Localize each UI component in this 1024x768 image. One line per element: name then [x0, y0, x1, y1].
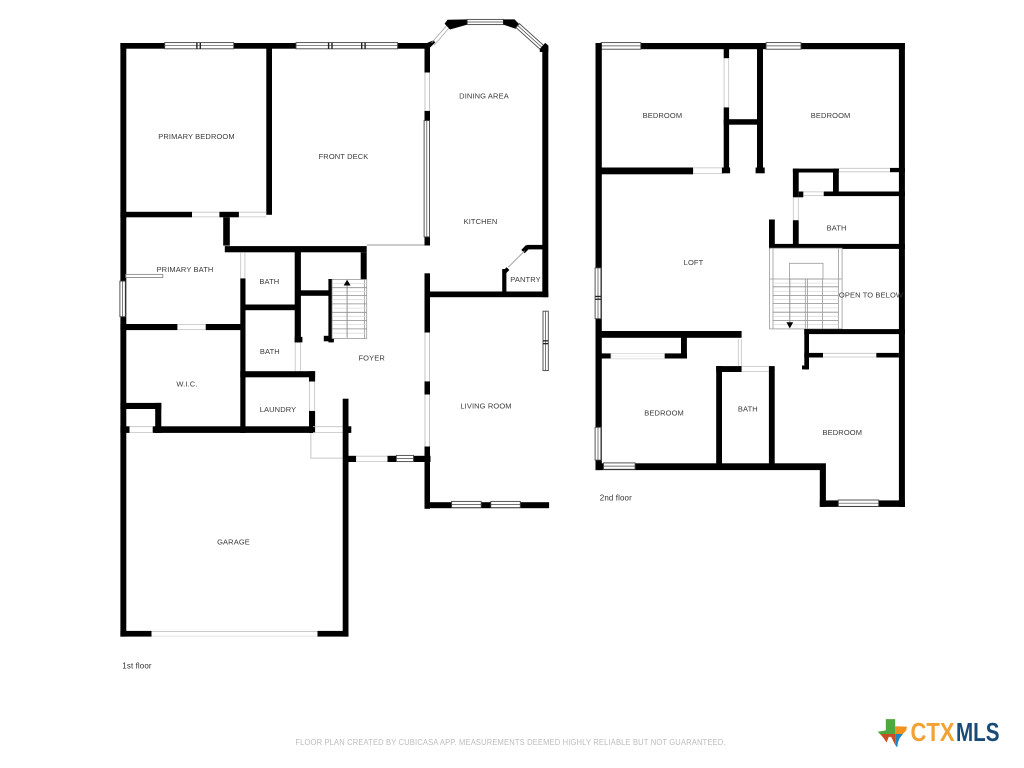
- svg-text:CTX: CTX: [911, 719, 955, 747]
- svg-text:LOFT: LOFT: [684, 258, 704, 267]
- svg-text:KITCHEN: KITCHEN: [464, 217, 498, 226]
- svg-text:BATH: BATH: [260, 347, 280, 356]
- svg-text:DINING AREA: DINING AREA: [459, 92, 509, 101]
- svg-text:BEDROOM: BEDROOM: [823, 428, 863, 437]
- svg-text:MLS: MLS: [956, 719, 1000, 747]
- svg-text:BATH: BATH: [827, 224, 847, 233]
- svg-text:GARAGE: GARAGE: [217, 538, 250, 547]
- svg-text:PRIMARY BEDROOM: PRIMARY BEDROOM: [158, 132, 235, 141]
- svg-text:LAUNDRY: LAUNDRY: [260, 405, 297, 414]
- svg-text:PRIMARY BATH: PRIMARY BATH: [157, 265, 214, 274]
- svg-text:1st floor: 1st floor: [122, 662, 152, 671]
- svg-text:BEDROOM: BEDROOM: [643, 111, 683, 120]
- svg-text:W.I.C.: W.I.C.: [176, 379, 197, 388]
- svg-text:BEDROOM: BEDROOM: [644, 409, 684, 418]
- svg-text:FRONT DECK: FRONT DECK: [319, 152, 369, 161]
- svg-text:BEDROOM: BEDROOM: [811, 111, 851, 120]
- svg-text:LIVING ROOM: LIVING ROOM: [460, 402, 511, 411]
- svg-text:PANTRY: PANTRY: [510, 275, 540, 284]
- svg-text:OPEN TO BELOW: OPEN TO BELOW: [839, 290, 904, 299]
- svg-text:BATH: BATH: [738, 404, 758, 413]
- svg-text:FLOOR PLAN CREATED BY CUBICASA: FLOOR PLAN CREATED BY CUBICASA APP. MEAS…: [295, 738, 725, 748]
- svg-text:2nd floor: 2nd floor: [600, 494, 632, 503]
- svg-text:BATH: BATH: [259, 277, 279, 286]
- svg-text:FOYER: FOYER: [358, 354, 385, 363]
